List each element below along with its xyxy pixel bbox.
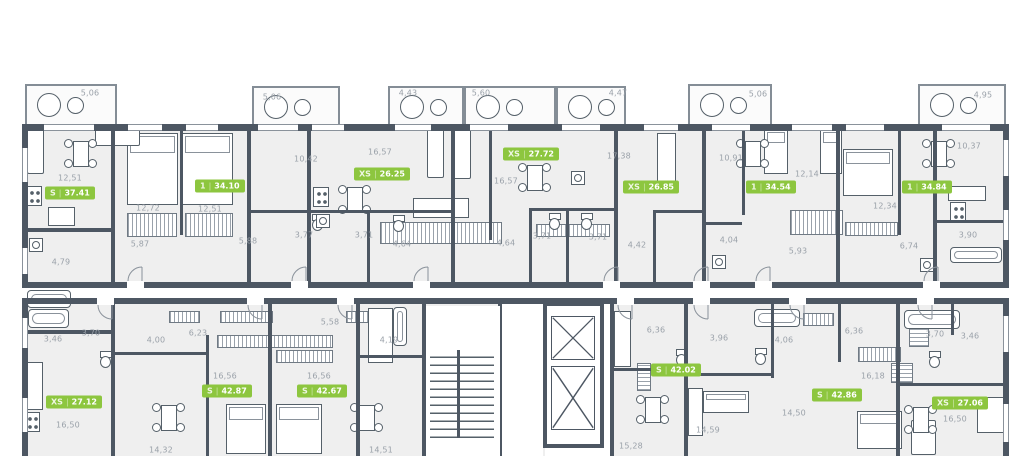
apartment-area: 34.54 — [765, 183, 790, 192]
apartment-area: 27.06 — [958, 399, 983, 408]
apartment-type: S — [207, 387, 213, 396]
dimension-label: 12,51 — [58, 174, 82, 183]
dimension-label: 4,00 — [147, 336, 166, 345]
badge-separator: | — [59, 189, 62, 198]
apartment-area: 37.41 — [64, 189, 89, 198]
apartment-area: 42.02 — [670, 366, 695, 375]
dimension-label: 4,43 — [399, 89, 418, 98]
dimension-label: 6,23 — [189, 329, 208, 338]
apartment-type: 1 — [200, 182, 206, 191]
dimension-label: 6,36 — [845, 327, 864, 336]
badge-separator: | — [952, 399, 955, 408]
dimension-label: 5,87 — [131, 240, 150, 249]
apartment-badge[interactable]: XS|27.72 — [503, 148, 559, 161]
dimension-label: 4,95 — [974, 91, 993, 100]
dimension-label: 4,64 — [497, 239, 516, 248]
dimension-label: 5,58 — [321, 318, 340, 327]
dimension-label: 16,57 — [494, 177, 518, 186]
apartment-area: 42.86 — [831, 391, 856, 400]
dimension-label: 3,46 — [44, 335, 63, 344]
dimension-label: 3,71 — [355, 231, 374, 240]
badge-separator: | — [826, 391, 829, 400]
dimension-label: 3,71 — [589, 233, 608, 242]
dimension-label: 3,77 — [295, 231, 314, 240]
dimension-label: 3,70 — [926, 330, 945, 339]
apartment-area: 27.12 — [72, 398, 97, 407]
dimension-label: 16,56 — [307, 372, 331, 381]
dimension-label: 3,96 — [710, 334, 729, 343]
apartment-badge[interactable]: XS|27.12 — [46, 396, 102, 409]
badge-separator: | — [311, 387, 314, 396]
apartment-type: XS — [937, 399, 949, 408]
dimension-label: 15,28 — [619, 442, 643, 451]
dimension-label: 4,79 — [52, 258, 71, 267]
apartment-badge[interactable]: S|42.87 — [202, 385, 252, 398]
dimension-label: 16,18 — [861, 372, 885, 381]
apartment-type: S — [302, 387, 308, 396]
dimension-label: 10,91 — [719, 154, 743, 163]
dimension-label: 3,71 — [533, 232, 552, 241]
apartment-badge[interactable]: XS|27.06 — [932, 397, 988, 410]
badge-separator: | — [760, 183, 763, 192]
badge-separator: | — [216, 387, 219, 396]
floor-plan: 5,065,064,435,604,475,064,9512,5112,7212… — [0, 0, 1016, 456]
apartment-type: XS — [359, 170, 371, 179]
dimension-label: 4,19 — [380, 336, 399, 345]
apartment-type: S — [50, 189, 56, 198]
apartment-area: 34.10 — [214, 182, 239, 191]
badge-separator: | — [66, 398, 69, 407]
dimension-label: 17,38 — [607, 152, 631, 161]
badge-separator: | — [916, 183, 919, 192]
apartment-badge[interactable]: 1|34.10 — [195, 180, 245, 193]
dimension-label: 14,51 — [369, 446, 393, 455]
apartment-badge[interactable]: S|42.86 — [812, 389, 862, 402]
dimension-label: 14,32 — [149, 446, 173, 455]
dimension-label: 5,88 — [239, 237, 258, 246]
dimension-label: 6,74 — [900, 242, 919, 251]
apartment-area: 26.25 — [380, 170, 405, 179]
dimension-label: 16,50 — [943, 415, 967, 424]
apartment-area: 27.72 — [529, 150, 554, 159]
dimension-label: 16,50 — [56, 421, 80, 430]
apartment-badge[interactable]: S|42.67 — [297, 385, 347, 398]
apartment-area: 42.87 — [221, 387, 246, 396]
apartment-area: 34.84 — [921, 183, 946, 192]
apartment-type: 1 — [907, 183, 913, 192]
dimension-label: 4,06 — [775, 336, 794, 345]
badge-separator: | — [374, 170, 377, 179]
apartment-badge[interactable]: XS|26.85 — [623, 181, 679, 194]
apartment-area: 42.67 — [316, 387, 341, 396]
apartment-type: XS — [51, 398, 63, 407]
dimension-label: 3,70 — [82, 329, 101, 338]
dimension-label: 10,42 — [294, 155, 318, 164]
dimension-label: 6,36 — [647, 326, 666, 335]
apartment-area: 26.85 — [649, 183, 674, 192]
badge-separator: | — [523, 150, 526, 159]
dimension-label: 12,34 — [873, 202, 897, 211]
dimension-label: 4,42 — [628, 241, 647, 250]
apartment-type: S — [817, 391, 823, 400]
apartment-type: XS — [508, 150, 520, 159]
dimension-label: 5,60 — [472, 89, 491, 98]
apartment-badge[interactable]: XS|26.25 — [354, 168, 410, 181]
door-arcs — [0, 0, 1016, 456]
dimension-label: 3,46 — [961, 332, 980, 341]
dimension-label: 5,93 — [789, 247, 808, 256]
dimension-label: 5,06 — [263, 93, 282, 102]
badge-separator: | — [643, 183, 646, 192]
apartment-type: XS — [628, 183, 640, 192]
dimension-label: 3,90 — [959, 231, 978, 240]
apartment-badge[interactable]: 1|34.84 — [902, 181, 952, 194]
dimension-label: 12,14 — [795, 170, 819, 179]
dimension-label: 12,51 — [198, 205, 222, 214]
dimension-label: 5,06 — [81, 89, 100, 98]
badge-separator: | — [665, 366, 668, 375]
dimension-label: 4,47 — [609, 89, 628, 98]
dimension-label: 4,64 — [393, 240, 412, 249]
dimension-label: 5,06 — [749, 90, 768, 99]
dimension-label: 14,59 — [696, 426, 720, 435]
apartment-badge[interactable]: S|42.02 — [651, 364, 701, 377]
badge-separator: | — [209, 182, 212, 191]
apartment-type: 1 — [751, 183, 757, 192]
apartment-type: S — [656, 366, 662, 375]
dimension-label: 16,57 — [368, 148, 392, 157]
dimension-label: 12,72 — [136, 204, 160, 213]
dimension-label: 10,37 — [957, 142, 981, 151]
dimension-label: 14,50 — [782, 409, 806, 418]
dimension-label: 4,04 — [720, 236, 739, 245]
apartment-badge[interactable]: S|37.41 — [45, 187, 95, 200]
apartment-badge[interactable]: 1|34.54 — [746, 181, 796, 194]
dimension-label: 16,56 — [213, 372, 237, 381]
